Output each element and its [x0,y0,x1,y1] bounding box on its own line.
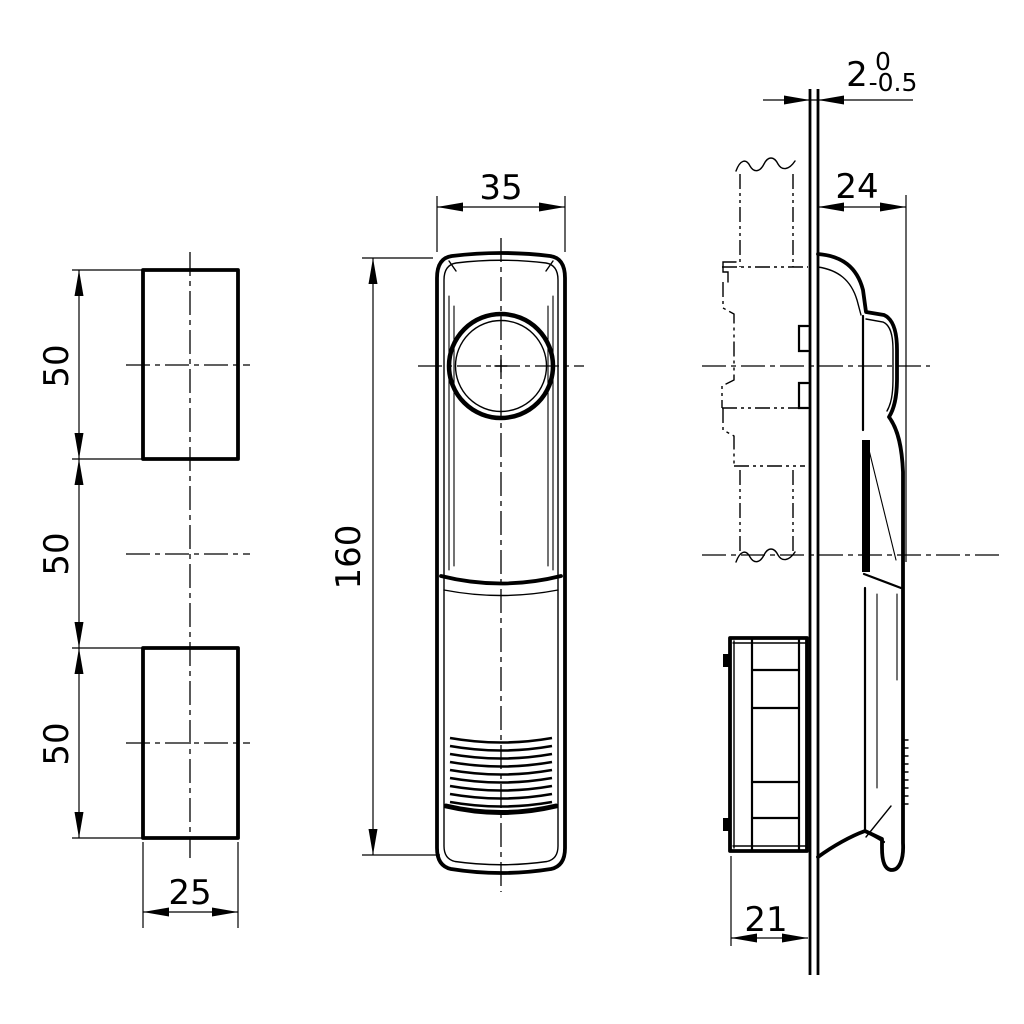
dim-arrow [212,908,238,917]
dim-arrow [539,203,565,212]
dim-label-2: 2 [846,55,868,95]
dim-label-160: 160 [329,525,369,590]
cylinder-bump-inner [866,319,893,411]
phantom-mechanism [722,158,808,562]
rear-housing [723,638,807,851]
panel-clip-lower [799,383,808,408]
break-line-top [736,158,795,171]
rib-line [450,770,552,775]
dim-arrow [75,433,84,459]
dim-arrow [143,908,169,917]
drawing-canvas: 50 50 50 25 [0,0,1024,1024]
dim-arrow [75,270,84,296]
dim-arrow [880,203,906,212]
dim-label-25: 25 [168,873,211,913]
dim-label-50-gap: 50 [37,532,77,575]
handle-side-silhouette [818,254,903,870]
dim-label-21: 21 [744,900,787,940]
center-cross [495,360,507,372]
dim-label-tol-lower: -0.5 [869,68,918,97]
hook-junction [865,831,884,842]
dim-arrow [369,258,378,284]
panel-clip-upper [799,326,808,351]
dim-label-35: 35 [479,168,522,208]
dim-arrow [75,622,84,648]
grip-top-diagonal [864,574,901,588]
dim-arrow [75,648,84,674]
dim-label-50-top: 50 [37,344,77,387]
dim-arrow [818,96,844,105]
phantom-tab-upper [723,262,736,282]
phantom-left-profile [722,282,734,408]
dim-arrow [75,812,84,838]
dim-arrow [75,459,84,485]
phantom-tab-lower [723,408,734,466]
cutout-view: 50 50 50 25 [37,252,250,928]
front-view: 35 160 [329,168,584,892]
dim-arrow [437,203,463,212]
dim-label-24: 24 [835,167,878,207]
grip-bottom-diagonal [866,806,891,837]
housing-latch-tab [723,818,731,831]
front-face-inner-edge [869,450,896,560]
technical-drawing: 50 50 50 25 [0,0,1024,1024]
housing-latch-tab [723,654,731,667]
dim-arrow [369,829,378,855]
dim-arrow [784,96,810,105]
side-view: 2 0 -0.5 24 21 [702,47,1002,975]
dim-label-50-bottom: 50 [37,722,77,765]
